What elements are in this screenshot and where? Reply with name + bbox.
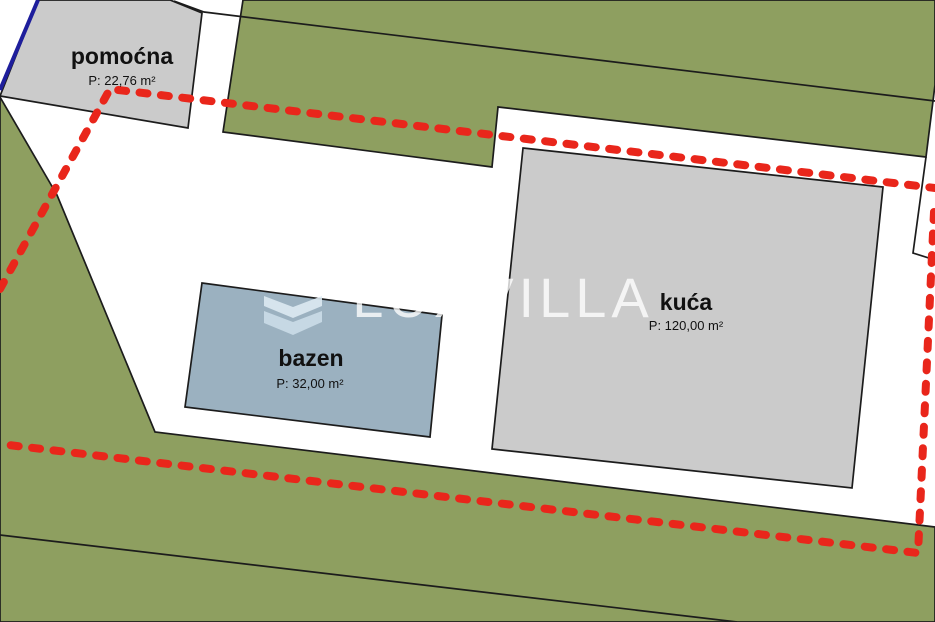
pomocna-label: pomoćna	[71, 43, 173, 69]
site-plan-canvas: pomoćna P: 22,76 m² kuća P: 120,00 m² ba…	[0, 0, 935, 622]
site-plan: pomoćna P: 22,76 m² kuća P: 120,00 m² ba…	[0, 0, 935, 622]
bazen-area-label: P: 32,00 m²	[276, 376, 344, 391]
pomocna-area-label: P: 22,76 m²	[88, 73, 156, 88]
bazen-label: bazen	[278, 345, 343, 371]
watermark-text: LUXVILLA	[352, 266, 654, 329]
green-parcel-north	[223, 0, 935, 167]
kuca-label: kuća	[660, 289, 713, 315]
kuca-area-label: P: 120,00 m²	[649, 318, 724, 333]
